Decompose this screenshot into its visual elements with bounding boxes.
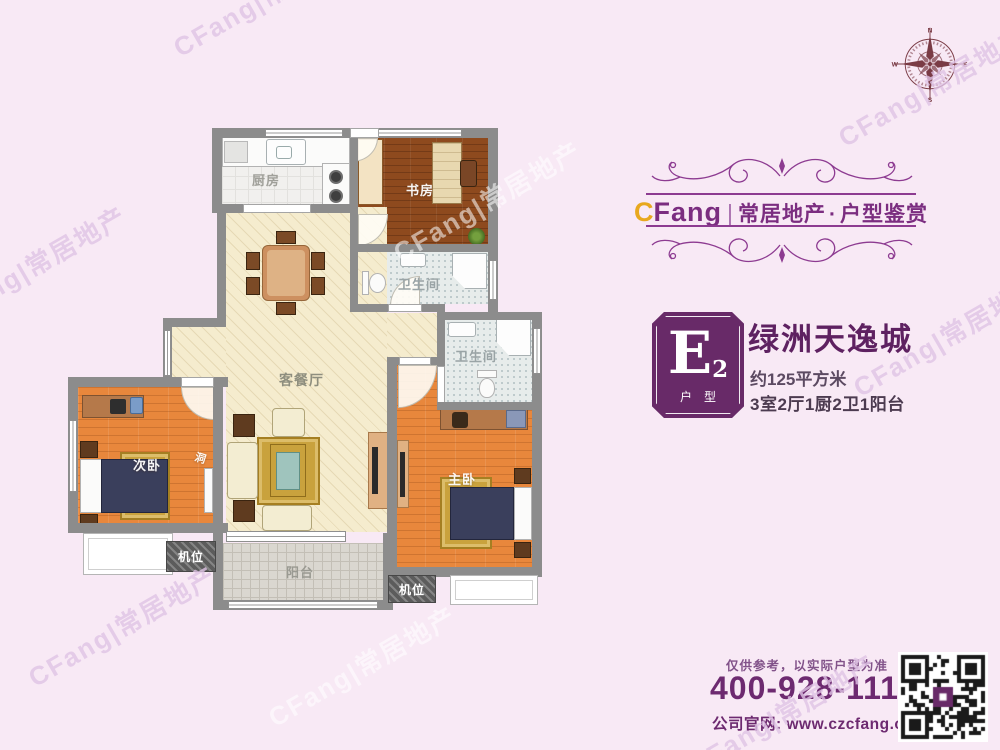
bath-lower-window [533, 328, 541, 374]
qr-code [898, 652, 988, 742]
bath-lower-label: 卫生间 [455, 346, 497, 365]
kitchen-window [265, 129, 343, 137]
toilet-tank [362, 271, 369, 295]
compass-east: E [963, 61, 968, 68]
website: 公司官网: www.czcfang.com [712, 712, 928, 734]
wardrobe [506, 410, 526, 428]
master-door-opening [399, 357, 431, 365]
second-bedroom-window [69, 420, 77, 492]
desk-chair [452, 412, 468, 428]
balcony-railing [228, 601, 378, 609]
brand-logo-c: C [634, 197, 654, 228]
brand-logo-fang: Fang [654, 197, 723, 228]
wall [212, 128, 222, 213]
wall [68, 523, 228, 533]
burner [329, 170, 343, 184]
side-table [233, 414, 255, 437]
unit-area: 约125平方米 [750, 365, 846, 390]
flourish-ornament-top [648, 154, 916, 192]
wall [437, 402, 532, 410]
kitchen-sink [266, 139, 306, 165]
brand-dot: · [829, 203, 837, 227]
ac-left-label: 机位 [178, 548, 204, 565]
study-label: 书房 [406, 180, 434, 199]
dining-chair [276, 231, 296, 244]
master-bedroom-label: 主卧 [448, 469, 476, 488]
stove [322, 163, 350, 208]
compass-south: S [928, 97, 933, 104]
entry-door-opening [350, 128, 379, 138]
laptop [110, 399, 126, 414]
dining-chair [276, 302, 296, 315]
hall-window [164, 330, 171, 376]
study-desk [432, 142, 462, 204]
toilet-tank [477, 370, 497, 378]
brand-lockup: CFang|常居地产·户型鉴赏 [640, 197, 922, 223]
wall [163, 318, 226, 327]
unit-code-letter: E [668, 319, 712, 387]
desk-chair [130, 397, 143, 414]
dining-table [262, 245, 310, 301]
brand-separator: | [727, 200, 733, 227]
sink-basin [276, 146, 292, 159]
unit-badge: E2 户型 [652, 312, 744, 418]
coffee-table-glass [276, 452, 300, 490]
bed-pillows [514, 487, 532, 540]
dining-chair [246, 252, 260, 270]
ac-right-label: 机位 [399, 581, 425, 598]
nightstand [514, 542, 531, 558]
master-bed [450, 487, 514, 540]
second-bedroom-label: 次卧 [133, 455, 161, 474]
kitchen-label: 厨房 [252, 170, 280, 189]
kitchen-opening [243, 204, 311, 213]
wall [437, 312, 542, 320]
unit-code: E2 [668, 325, 728, 383]
second-bedroom-door-opening [181, 377, 214, 387]
balcony-door-window [226, 531, 346, 542]
coffee-table [270, 444, 306, 497]
study-window [378, 129, 462, 137]
flourish-ornament-bottom [648, 229, 916, 267]
sofa-small [262, 505, 312, 531]
fridge [224, 141, 248, 163]
wall [350, 244, 498, 252]
armchair [272, 408, 305, 437]
dining-chair [311, 252, 325, 270]
tv [400, 452, 405, 497]
tv [372, 447, 378, 494]
ac-platform-left: 机位 [166, 541, 216, 572]
study-chair [460, 160, 477, 187]
balcony-label: 阳台 [286, 562, 314, 581]
unit-rooms-spec: 3室2厅1厨2卫1阳台 [750, 390, 905, 415]
unit-badge-inner: E2 户型 [656, 316, 740, 414]
bath-upper-label: 卫生间 [398, 274, 440, 293]
sofa-two-seat [227, 442, 258, 499]
living-label: 客餐厅 [279, 370, 324, 390]
brand-series: 户型鉴赏 [840, 198, 928, 228]
bed-pillows [80, 459, 102, 513]
dining-table-top [267, 250, 305, 296]
bath-upper-toilet [369, 273, 386, 293]
wall [213, 387, 223, 533]
plant [468, 228, 485, 245]
wall [217, 204, 226, 327]
tv-bench [204, 468, 213, 513]
nightstand [514, 468, 531, 484]
bay-window-right [450, 575, 538, 605]
bath-upper-sink [400, 253, 426, 267]
tv-cabinet [368, 432, 388, 509]
brand-rule-bottom [646, 225, 916, 227]
ac-platform-right: 机位 [388, 575, 436, 603]
bath-upper-door-opening [388, 304, 422, 312]
side-table [233, 500, 255, 522]
brand-company: 常居地产 [738, 198, 826, 228]
compass-north: N [928, 28, 933, 35]
brand-rule-top [646, 193, 916, 195]
bath-upper-window [489, 260, 497, 300]
unit-code-number: 2 [712, 357, 728, 384]
master-tv-stand [397, 440, 409, 508]
bay-window-left [83, 533, 173, 575]
bath-lower-toilet [479, 378, 495, 398]
compass-west: W [892, 61, 899, 68]
hotline-phone: 400-928-1117 [710, 670, 918, 707]
burner [329, 189, 343, 203]
compass-rose: N S E W [890, 24, 970, 104]
floorplan-poster: 机位 机位 厨房 书房 卫生间 卫生间 客餐厅 次卧 主卧 阳台 洞 [0, 0, 1000, 750]
bath-lower-door-opening [437, 366, 445, 406]
dining-chair [246, 277, 260, 295]
nightstand [80, 441, 98, 458]
wall [350, 137, 358, 312]
property-name: 绿洲天逸城 [748, 314, 913, 359]
unit-badge-caption: 户型 [668, 388, 728, 405]
floor-plan: 机位 机位 厨房 书房 卫生间 卫生间 客餐厅 次卧 主卧 阳台 洞 [0, 0, 1000, 750]
dining-chair [311, 277, 325, 295]
bath-lower-sink [448, 322, 476, 337]
